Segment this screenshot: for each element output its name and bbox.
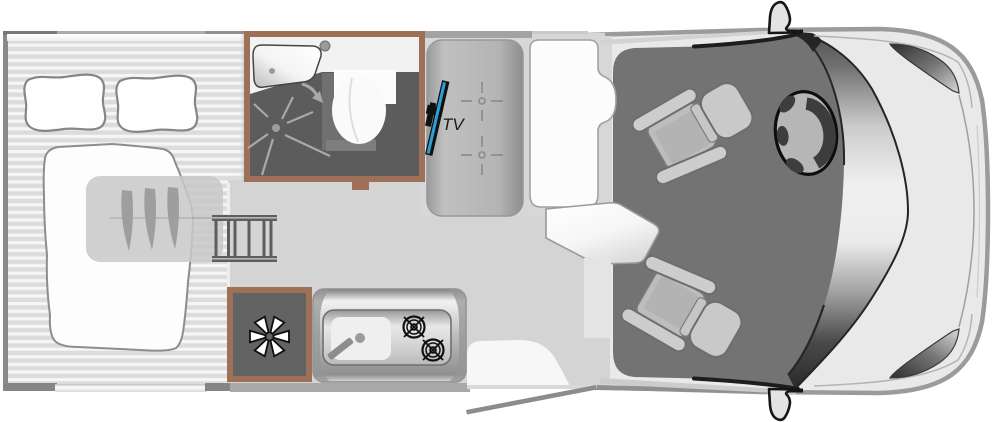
svg-text:TV: TV: [442, 115, 465, 134]
